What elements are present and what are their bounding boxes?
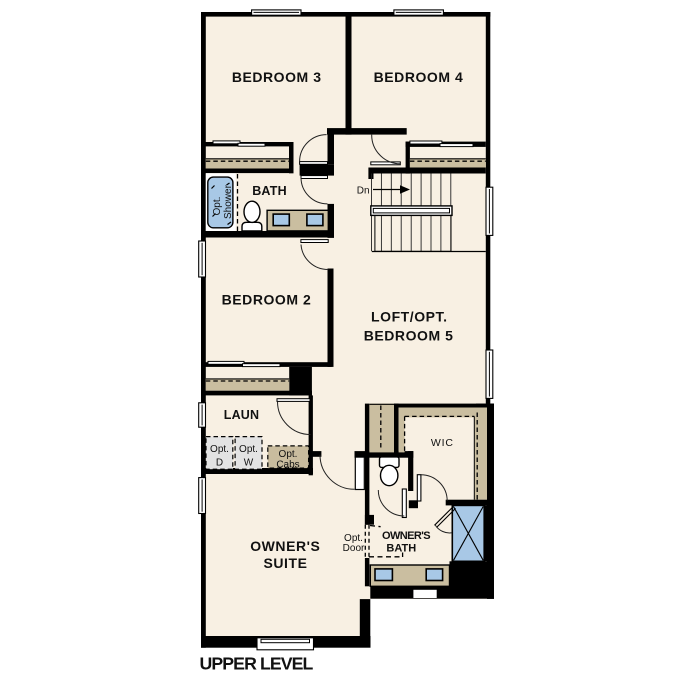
svg-text:Opt.: Opt. xyxy=(239,444,258,455)
svg-text:Opt.: Opt. xyxy=(210,444,229,455)
svg-text:UPPER LEVEL: UPPER LEVEL xyxy=(200,653,314,673)
svg-text:LAUN: LAUN xyxy=(224,408,260,422)
svg-text:LOFT/OPT.: LOFT/OPT. xyxy=(371,309,448,325)
svg-text:D: D xyxy=(216,458,223,469)
svg-text:WIC: WIC xyxy=(431,437,454,449)
svg-text:BEDROOM 4: BEDROOM 4 xyxy=(374,69,464,85)
svg-text:OWNER'S: OWNER'S xyxy=(382,530,430,542)
svg-text:Opt.: Opt. xyxy=(212,197,223,216)
svg-text:Cabs: Cabs xyxy=(276,459,299,470)
svg-text:BATH: BATH xyxy=(386,542,416,554)
svg-text:SUITE: SUITE xyxy=(264,555,308,571)
svg-text:Shower: Shower xyxy=(223,184,234,219)
svg-text:BATH: BATH xyxy=(252,184,287,198)
svg-text:W: W xyxy=(244,458,254,469)
svg-text:Door: Door xyxy=(343,543,365,554)
svg-text:OWNER'S: OWNER'S xyxy=(250,538,320,554)
svg-text:BEDROOM 5: BEDROOM 5 xyxy=(364,328,454,344)
svg-text:Opt.: Opt. xyxy=(279,449,298,460)
svg-text:Dn: Dn xyxy=(357,185,370,196)
svg-text:BEDROOM 2: BEDROOM 2 xyxy=(222,292,312,308)
svg-text:BEDROOM 3: BEDROOM 3 xyxy=(232,69,322,85)
